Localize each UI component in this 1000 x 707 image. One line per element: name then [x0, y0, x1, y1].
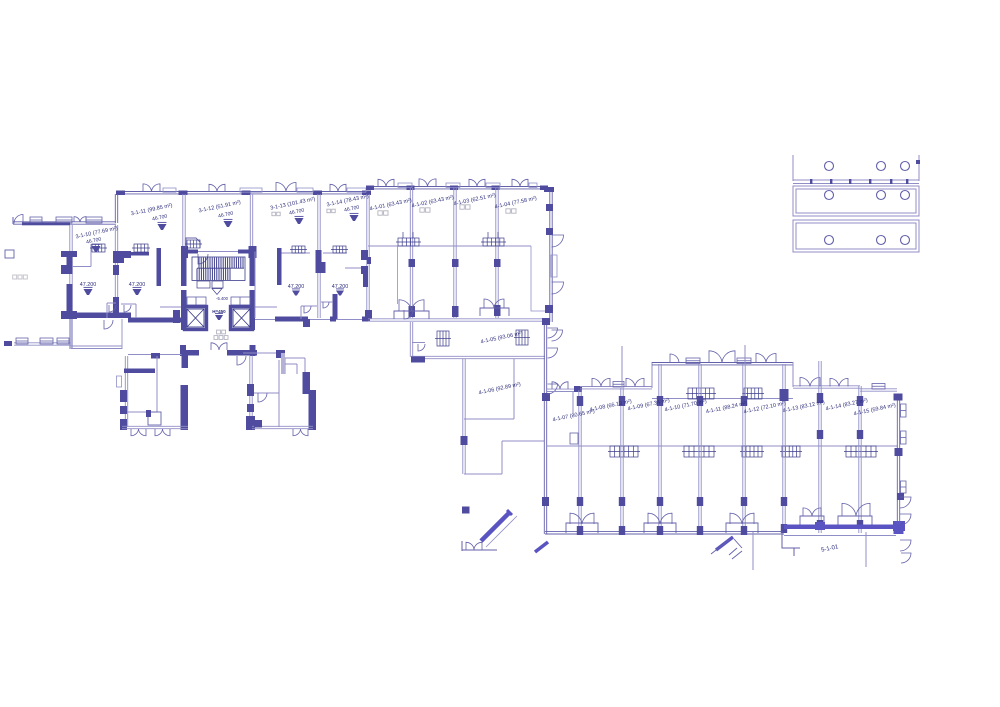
svg-text:-5.400: -5.400: [216, 296, 229, 301]
